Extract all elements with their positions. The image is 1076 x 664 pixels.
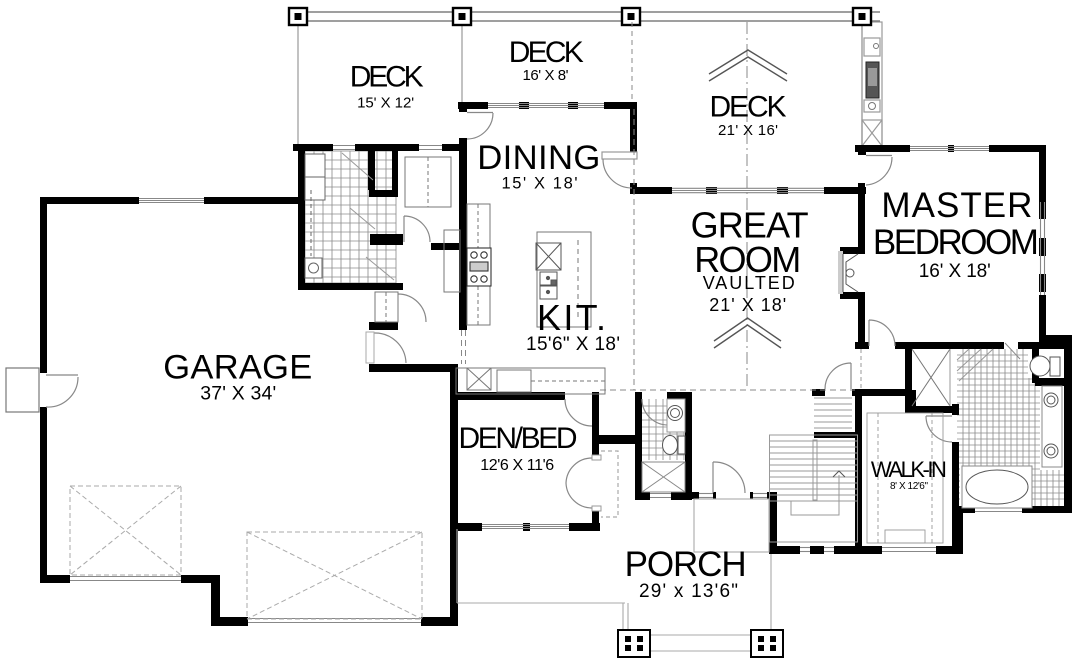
svg-text:37' X 34': 37' X 34' (200, 382, 276, 404)
svg-text:8' X 12'6": 8' X 12'6" (890, 481, 928, 492)
svg-text:29' x 13'6": 29' x 13'6" (639, 581, 738, 602)
svg-text:16' X 8': 16' X 8' (523, 67, 569, 84)
svg-text:15' X 12': 15' X 12' (357, 95, 414, 112)
svg-text:VAULTED: VAULTED (703, 273, 795, 293)
svg-text:15'6" X 18': 15'6" X 18' (526, 334, 620, 355)
svg-text:MASTER: MASTER (881, 186, 1032, 225)
svg-text:PORCH: PORCH (625, 545, 747, 584)
svg-text:DECK: DECK (509, 36, 584, 69)
svg-text:WALK-IN: WALK-IN (871, 457, 947, 482)
svg-text:12'6 X 11'6: 12'6 X 11'6 (480, 457, 554, 474)
svg-text:DECK: DECK (710, 91, 787, 124)
svg-text:15' X 18': 15' X 18' (502, 175, 578, 193)
svg-text:DECK: DECK (350, 61, 424, 94)
svg-text:16' X 18': 16' X 18' (919, 261, 991, 282)
svg-text:DINING: DINING (477, 139, 600, 177)
svg-text:KIT.: KIT. (537, 297, 606, 338)
svg-text:DEN/BED: DEN/BED (459, 422, 578, 455)
svg-text:21' X 18': 21' X 18' (709, 295, 786, 315)
svg-text:BEDROOM: BEDROOM (873, 223, 1039, 262)
svg-text:GARAGE: GARAGE (163, 349, 312, 387)
svg-text:21' X 16': 21' X 16' (718, 122, 778, 139)
